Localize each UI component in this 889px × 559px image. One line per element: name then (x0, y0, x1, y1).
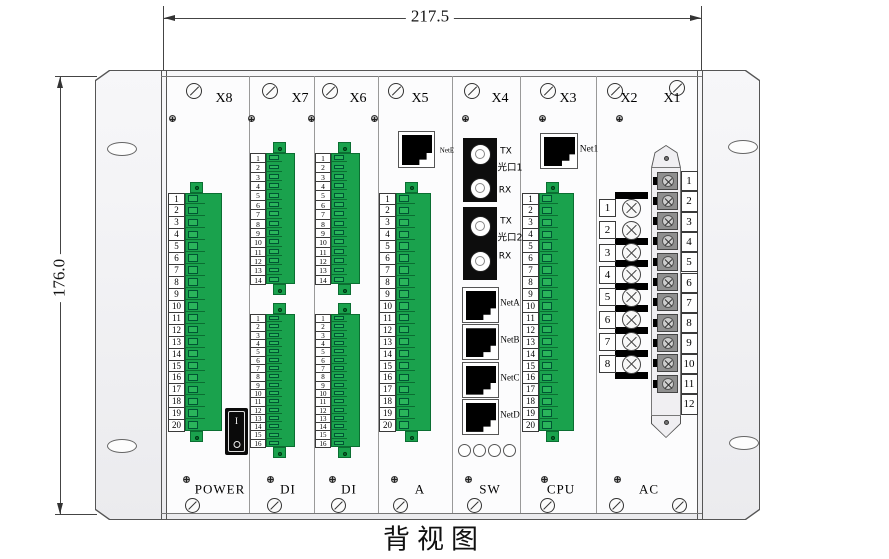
screw-slot (612, 501, 620, 509)
phillips-screw-icon (267, 476, 274, 483)
terminal-pin-number: 5 (599, 288, 616, 306)
tab-screw-dot (195, 436, 199, 440)
screw-slot (189, 86, 198, 95)
terminal-mount-tab (405, 431, 418, 442)
tab-screw-dot (343, 289, 347, 293)
rj45-port (462, 399, 499, 435)
wire-entry (269, 408, 279, 412)
wire-entry (269, 349, 279, 353)
terminal-pin-number: 7 (681, 293, 698, 313)
wire-entry (334, 424, 344, 428)
screw-cross (615, 479, 620, 480)
terminal-row (185, 336, 205, 348)
terminal-pin-number: 6 (681, 273, 698, 293)
wire-entry (399, 290, 409, 297)
wire-entry (334, 408, 344, 412)
screw-head-icon (622, 199, 641, 218)
terminal-mount-tab (338, 303, 351, 314)
led-indicator-icon (488, 444, 501, 457)
terminal-row (539, 360, 558, 372)
wire-entry (542, 398, 552, 405)
terminal-pin-number: 4 (681, 232, 698, 252)
slotted-screw-icon (185, 498, 200, 513)
terminal-row (396, 395, 415, 407)
terminal-row (266, 209, 282, 218)
tab-screw-dot (343, 147, 347, 151)
wire-entry (334, 374, 344, 378)
terminal-row (331, 256, 347, 265)
module-label: AC (639, 483, 659, 496)
strip-screw-icon (657, 334, 678, 352)
terminal-row (266, 356, 282, 364)
wire-entry (269, 366, 279, 370)
terminal-row (539, 276, 558, 288)
wire-entry (334, 316, 344, 320)
terminal-pin-number: 3 (599, 244, 616, 262)
port-label: NetD (500, 410, 520, 419)
terminal-row (185, 383, 205, 395)
wire-entry (269, 333, 279, 337)
wire-entry (542, 290, 552, 297)
wire-entry (399, 386, 409, 393)
screw-slot (391, 86, 400, 95)
terminal-row (396, 252, 415, 264)
rj45-port (398, 131, 435, 168)
module-label: DI (341, 483, 357, 496)
wire-entry (269, 230, 279, 235)
terminal-row (185, 360, 205, 372)
terminal-row (539, 252, 558, 264)
terminal-pin-number: 6 (599, 311, 616, 329)
terminal-row (396, 264, 415, 276)
led-indicator-icon (473, 444, 486, 457)
terminal-row (331, 397, 347, 405)
terminal-row (266, 406, 282, 414)
terminal-pin-number: 3 (681, 212, 698, 232)
wire-entry (269, 268, 279, 273)
slotted-screw-icon (672, 498, 687, 513)
wire-entry (269, 193, 279, 198)
screw-head-icon (622, 355, 641, 374)
terminal-row (185, 252, 205, 264)
optical-port-label: RX (499, 253, 511, 262)
tab-screw-dot (278, 147, 282, 151)
terminal-row (396, 193, 415, 205)
module-label: SW (479, 483, 501, 496)
screw-head-icon (622, 221, 641, 240)
terminal-row (539, 383, 558, 395)
optical-port-label: 光口1 (497, 163, 522, 173)
terminal-row (331, 364, 347, 372)
terminal-row (539, 395, 558, 407)
tab-screw-dot (551, 186, 555, 190)
wire-entry (188, 290, 198, 297)
wire-entry (334, 193, 344, 198)
phillips-screw-icon (308, 115, 315, 122)
terminal-row (266, 153, 282, 162)
terminal-pin-number: 9 (681, 333, 698, 353)
wire-entry (269, 221, 279, 226)
wire-entry (188, 231, 198, 238)
slotted-screw-icon (322, 83, 338, 99)
terminal-row (185, 276, 205, 288)
wire-entry (399, 207, 409, 214)
terminal-row (331, 422, 347, 430)
terminal-row (539, 371, 558, 383)
wire-entry (269, 202, 279, 207)
wire-entry (269, 416, 279, 420)
wire-entry (188, 374, 198, 381)
screw-cross (372, 119, 377, 120)
wire-entry (399, 314, 409, 321)
strip-screw-icon (657, 293, 678, 311)
screw-slot (543, 86, 552, 95)
terminal-pin-number: 1 (599, 199, 616, 217)
screw-slot (265, 86, 274, 95)
terminal-mount-tab (546, 431, 559, 442)
rj45-jack-icon (466, 366, 496, 395)
wire-entry (542, 231, 552, 238)
terminal-row (266, 322, 282, 330)
strip-screw-icon (657, 253, 678, 271)
wire-entry (542, 374, 552, 381)
terminal-row (266, 372, 282, 380)
slotted-screw-icon (393, 498, 408, 513)
slot-divider (452, 76, 453, 513)
wire-entry (188, 219, 198, 226)
wire-entry (399, 278, 409, 285)
wire-entry (334, 333, 344, 337)
slotted-screw-icon (464, 83, 480, 99)
phillips-screw-icon (371, 115, 378, 122)
terminal-mount-tab (190, 182, 203, 193)
rj45-jack-icon (402, 135, 432, 165)
terminal-row (396, 419, 415, 431)
tab-screw-dot (410, 436, 414, 440)
wire-entry (542, 195, 552, 202)
terminal-row (266, 181, 282, 190)
wire-entry (188, 314, 198, 321)
terminal-pin-number: 14 (250, 275, 266, 285)
wire-entry (542, 421, 552, 428)
module-label: POWER (195, 483, 246, 496)
strip-screw-icon (657, 232, 678, 250)
screw-cross (184, 479, 189, 480)
terminal-pin-number: 1 (681, 171, 698, 191)
terminal-row (185, 264, 205, 276)
rj45-jack-icon (466, 403, 496, 432)
slot-label: X8 (215, 92, 232, 106)
screw-slot (396, 501, 404, 509)
phillips-screw-icon (391, 476, 398, 483)
wire-entry (399, 362, 409, 369)
wire-entry (188, 362, 198, 369)
terminal-row (396, 300, 415, 312)
phillips-screw-icon (539, 115, 546, 122)
terminal-row (331, 209, 347, 218)
terminal-row (331, 347, 347, 355)
terminal-row (266, 200, 282, 209)
tab-screw-dot (410, 186, 414, 190)
wire-entry (269, 424, 279, 428)
screw-cross (466, 479, 471, 480)
wire-entry (334, 183, 344, 188)
terminal-row (331, 381, 347, 389)
port-label: NetE (440, 148, 454, 155)
optical-port-label: 光口2 (497, 233, 522, 243)
terminal-row (396, 336, 415, 348)
screw-slot (188, 501, 196, 509)
wire-entry (269, 441, 279, 445)
wire-entry (188, 421, 198, 428)
screw-cross (330, 479, 335, 480)
wire-entry (269, 358, 279, 362)
terminal-row (331, 406, 347, 414)
terminal-row (331, 190, 347, 199)
terminal-row (266, 265, 282, 274)
wire-entry (269, 249, 279, 254)
wire-entry (334, 349, 344, 353)
terminal-row (266, 228, 282, 237)
phillips-screw-icon (462, 115, 469, 122)
wire-entry (334, 399, 344, 403)
terminal-pin-number: 12 (681, 394, 698, 414)
terminal-row (331, 331, 347, 339)
wire-entry (334, 249, 344, 254)
terminal-row (396, 324, 415, 336)
wire-entry (334, 341, 344, 345)
terminal-row (396, 204, 415, 216)
wire-entry (269, 316, 279, 320)
fiber-bore (475, 221, 485, 231)
tab-screw-dot (278, 289, 282, 293)
terminal-row (331, 265, 347, 274)
rear-view-diagram: 217.5 176.0 X8X7X6X5X4X3X2X1POWERDIDIASW… (0, 0, 889, 559)
terminal-mount-tab (338, 142, 351, 153)
wire-entry (399, 254, 409, 261)
terminal-row (266, 381, 282, 389)
slot-divider (520, 76, 521, 513)
terminal-row (396, 371, 415, 383)
wire-entry (269, 174, 279, 179)
tab-screw-dot (664, 420, 669, 425)
wire-entry (269, 399, 279, 403)
terminal-row (266, 347, 282, 355)
wire-entry (542, 326, 552, 333)
terminal-row (185, 193, 205, 205)
strip-screw-icon (657, 314, 678, 332)
terminal-row (266, 439, 282, 447)
terminal-pin-number: 20 (168, 419, 185, 432)
wire-entry (542, 207, 552, 214)
terminal-row (539, 312, 558, 324)
rj45-port (462, 362, 499, 398)
wire-entry (269, 211, 279, 216)
terminal-pin-number: 20 (379, 419, 396, 432)
wire-entry (399, 338, 409, 345)
screw-cross (540, 119, 545, 120)
terminal-row (331, 430, 347, 438)
terminal-row (331, 439, 347, 447)
slot-label: X4 (491, 92, 508, 106)
slot-label: X6 (349, 92, 366, 106)
wire-entry (399, 266, 409, 273)
wire-entry (188, 398, 198, 405)
terminal-row (185, 240, 205, 252)
wire-entry (399, 409, 409, 416)
terminal-pin-number: 2 (681, 191, 698, 211)
optical-port-label: RX (499, 187, 511, 196)
terminal-row (185, 419, 205, 431)
slot-label: X7 (291, 92, 308, 106)
terminal-row (266, 172, 282, 181)
port-label: NetA (500, 299, 520, 308)
wire-entry (334, 441, 344, 445)
slotted-screw-icon (388, 83, 404, 99)
terminal-mount-tab (405, 182, 418, 193)
screw-cross (249, 119, 254, 120)
wire-entry (399, 219, 409, 226)
terminal-row (331, 247, 347, 256)
slotted-screw-icon (609, 498, 624, 513)
screw-cross (392, 479, 397, 480)
wire-entry (334, 211, 344, 216)
terminal-row (185, 312, 205, 324)
wire-entry (399, 242, 409, 249)
terminal-row (331, 389, 347, 397)
terminal-row (331, 339, 347, 347)
slot-label: X5 (411, 92, 428, 106)
terminal-mount-tab (273, 303, 286, 314)
terminal-row (266, 414, 282, 422)
wire-entry (269, 383, 279, 387)
screw-cross (268, 479, 273, 480)
screw-slot (270, 501, 278, 509)
slotted-screw-icon (540, 498, 555, 513)
terminal-pin-number: 20 (522, 419, 539, 432)
terminal-row (185, 395, 205, 407)
switch-off-mark (233, 441, 240, 448)
terminal-row (331, 314, 347, 322)
terminal-row (539, 348, 558, 360)
terminal-row (266, 422, 282, 430)
wire-entry (334, 230, 344, 235)
tab-screw-dot (551, 436, 555, 440)
tab-screw-dot (343, 452, 347, 456)
terminal-row (331, 228, 347, 237)
terminal-row (185, 228, 205, 240)
phillips-screw-icon (169, 115, 176, 122)
terminal-row (185, 407, 205, 419)
wire-entry (188, 207, 198, 214)
screw-head-icon (622, 310, 641, 329)
wire-entry (542, 409, 552, 416)
terminal-mount-tab (190, 431, 203, 442)
wire-entry (188, 326, 198, 333)
terminal-pin-number: 16 (315, 439, 331, 448)
wire-entry (269, 277, 279, 282)
terminal-mount-tab (546, 182, 559, 193)
terminal-row (539, 216, 558, 228)
terminal-row (539, 300, 558, 312)
screw-head-icon (622, 288, 641, 307)
module-label: DI (280, 483, 296, 496)
screw-cross (309, 119, 314, 120)
wire-entry (542, 254, 552, 261)
optical-port-icon (470, 251, 491, 272)
wire-entry (188, 195, 198, 202)
wire-entry (334, 202, 344, 207)
wire-entry (334, 277, 344, 282)
wire-entry (188, 409, 198, 416)
slotted-screw-icon (467, 498, 482, 513)
terminal-pin-number: 10 (681, 354, 698, 374)
terminal-row (266, 331, 282, 339)
terminal-row (539, 288, 558, 300)
rj45-jack-icon (466, 291, 496, 320)
screw-slot (543, 501, 551, 509)
terminal-row (185, 288, 205, 300)
screw-slot (325, 86, 334, 95)
terminal-row (266, 397, 282, 405)
terminal-row (331, 322, 347, 330)
terminal-pin-number: 2 (599, 221, 616, 239)
wire-entry (334, 358, 344, 362)
wire-entry (334, 221, 344, 226)
rj45-port (540, 133, 578, 169)
terminal-row (539, 419, 558, 431)
terminal-row (185, 324, 205, 336)
terminal-row (266, 275, 282, 284)
terminal-row (185, 204, 205, 216)
terminal-row (331, 414, 347, 422)
terminal-mount-tab (273, 284, 286, 295)
terminal-row (396, 312, 415, 324)
wire-entry (269, 155, 279, 160)
wire-entry (188, 350, 198, 357)
screw-slot (334, 501, 342, 509)
wire-entry (269, 165, 279, 170)
wire-entry (399, 195, 409, 202)
wire-entry (334, 416, 344, 420)
wire-entry (334, 324, 344, 328)
optical-port-label: TX (500, 218, 512, 227)
wire-entry (334, 258, 344, 263)
terminal-row (266, 256, 282, 265)
screw-cross (463, 119, 468, 120)
wire-entry (188, 266, 198, 273)
view-caption: 背视图 (383, 527, 485, 554)
phillips-screw-icon (248, 115, 255, 122)
terminal-row (331, 153, 347, 162)
terminal-pin-number: 5 (681, 252, 698, 272)
strip-screw-icon (657, 192, 678, 210)
terminal-row (266, 219, 282, 228)
terminal-row (266, 314, 282, 322)
slotted-screw-icon (331, 498, 346, 513)
terminal-pin-number: 7 (599, 333, 616, 351)
slotted-screw-icon (262, 83, 278, 99)
terminal-row (396, 276, 415, 288)
wire-entry (334, 383, 344, 387)
terminal-row (396, 240, 415, 252)
screw-cross (617, 119, 622, 120)
port-label: NetC (501, 373, 520, 382)
terminal-pin-number: 8 (599, 355, 616, 373)
power-switch: I (225, 408, 248, 455)
terminal-row (266, 190, 282, 199)
terminal-row (266, 237, 282, 246)
